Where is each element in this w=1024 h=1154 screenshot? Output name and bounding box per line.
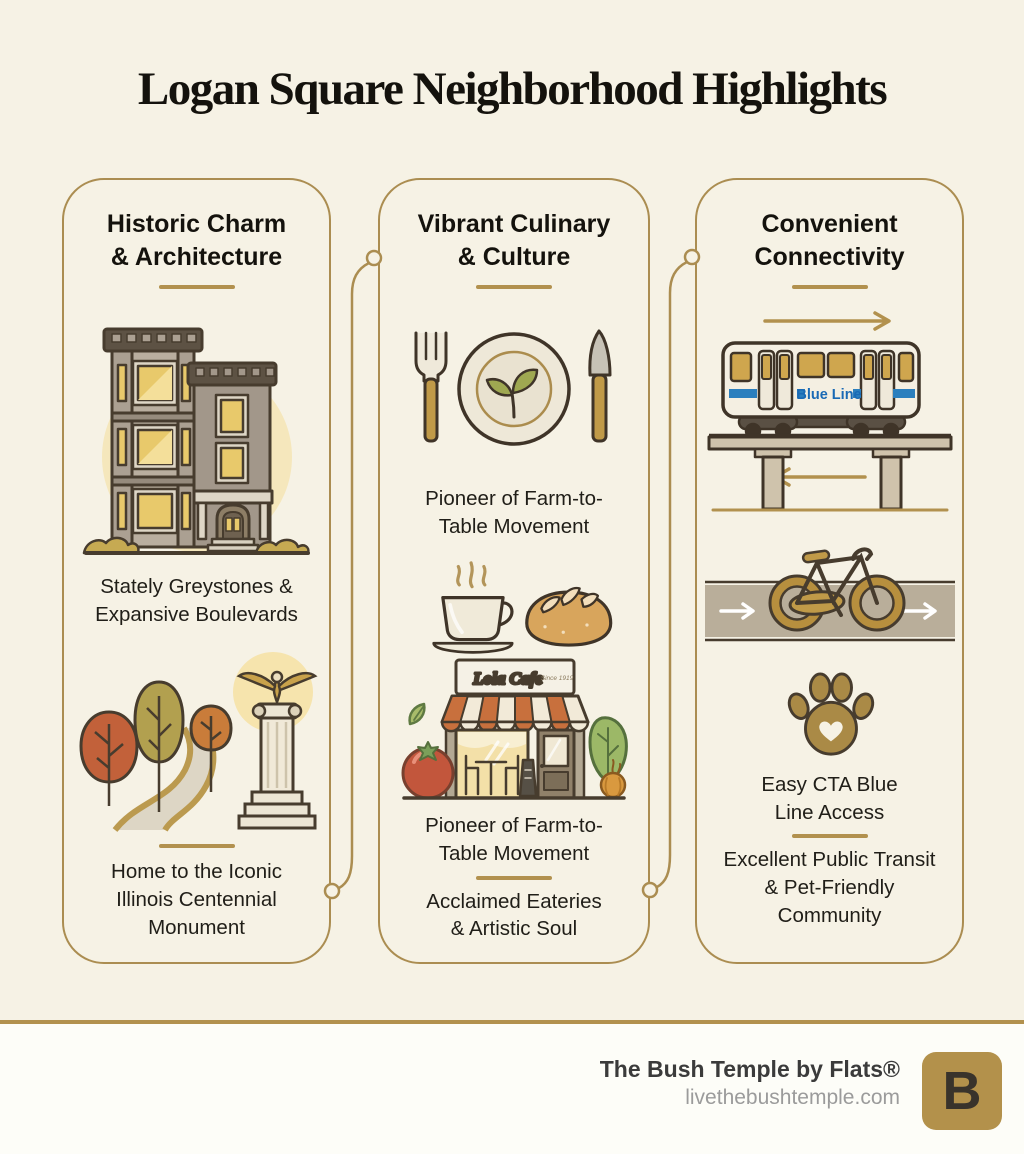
svg-text:Lola Cafe: Lola Cafe [472, 669, 543, 688]
blue-line-train-icon: Blue Line [705, 305, 955, 527]
card-convenient-connectivity: Convenient Connectivity [695, 178, 964, 964]
card-historic-title: Historic Charm & Architecture [107, 208, 286, 273]
title-underline [792, 285, 868, 289]
svg-text:Since 1919: Since 1919 [541, 675, 574, 682]
svg-text:Blue Line: Blue Line [796, 387, 861, 403]
cafe-storefront-icon: Lola Cafe Since 1919 [398, 656, 630, 806]
caption-farm-to-table-1: Pioneer of Farm-to- Table Movement [425, 485, 603, 540]
section-divider [159, 844, 235, 848]
caption-farm-to-table-2: Pioneer of Farm-to- Table Movement [425, 812, 603, 867]
card-connectivity-title: Convenient Connectivity [754, 208, 904, 273]
section-divider [792, 834, 868, 838]
bike-lane-icon [705, 541, 955, 655]
page-title: Logan Square Neighborhood Highlights [0, 62, 1024, 116]
paw-print-icon [780, 671, 880, 759]
caption-monument: Home to the Iconic Illinois Centennial M… [111, 858, 282, 941]
brand-website: livethebushtemple.com [600, 1086, 900, 1110]
card-vibrant-culinary: Vibrant Culinary & Culture Pioneer of Fa… [378, 178, 650, 964]
greystone-building-icon [76, 305, 318, 559]
title-underline [159, 285, 235, 289]
caption-transit: Excellent Public Transit & Pet-Friendly … [724, 846, 936, 929]
brand-logo-letter: B [943, 1060, 982, 1122]
caption-blue-line: Easy CTA Blue Line Access [761, 771, 897, 826]
section-divider [476, 876, 552, 880]
brand-name: The Bush Temple by Flats® [600, 1056, 900, 1083]
title-underline [476, 285, 552, 289]
card-historic-charm: Historic Charm & Architecture [62, 178, 331, 964]
footer: The Bush Temple by Flats® livethebushtem… [0, 1024, 1024, 1154]
park-path-monument-icon [71, 644, 323, 834]
coffee-and-bread-icon [408, 552, 620, 656]
caption-eateries: Acclaimed Eateries & Artistic Soul [426, 888, 601, 943]
brand-logo: B [922, 1052, 1002, 1130]
caption-greystones: Stately Greystones & Expansive Boulevard… [95, 573, 298, 628]
card-culinary-title: Vibrant Culinary & Culture [418, 208, 611, 273]
place-setting-icon [394, 317, 634, 459]
